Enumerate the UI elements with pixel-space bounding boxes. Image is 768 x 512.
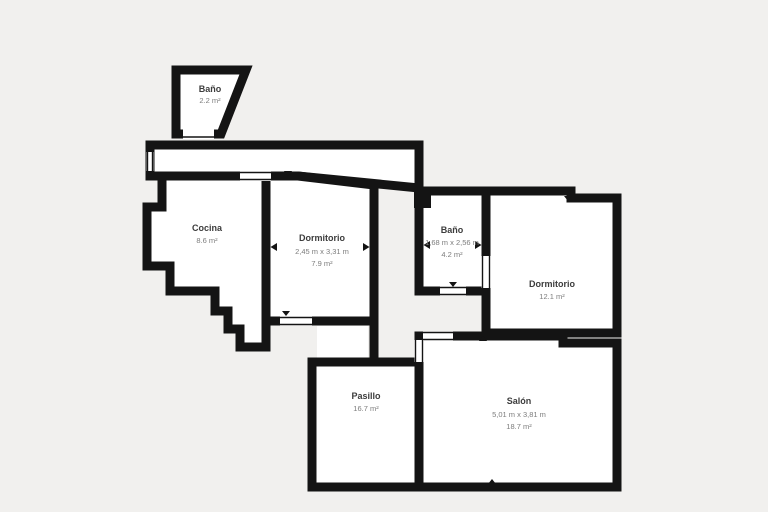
room-name: Dormitorio — [529, 279, 576, 289]
room-name: Dormitorio — [299, 233, 346, 243]
wall-bano-mid-notch — [414, 191, 431, 208]
room-dims: 1,68 m x 2,56 m — [425, 238, 479, 247]
room-area: 12.1 m² — [539, 292, 565, 301]
room-dims: 5,01 m x 3,81 m — [492, 410, 546, 419]
wall-dormleft-to-pasillo — [370, 316, 379, 366]
cavity-strip — [317, 326, 368, 358]
room-pasillo-outline — [312, 362, 419, 487]
floorplan-page: Baño 2.2 m² Cocina 8.6 m² Dormitorio 2,4… — [0, 0, 768, 512]
room-area: 7.9 m² — [311, 259, 333, 268]
room-name: Pasillo — [351, 391, 381, 401]
room-name: Cocina — [192, 223, 223, 233]
room-area: 2.2 m² — [199, 96, 221, 105]
room-area: 4.2 m² — [441, 250, 463, 259]
room-dormitorio-right-outline — [486, 191, 617, 333]
room-area: 8.6 m² — [196, 236, 218, 245]
floorplan-canvas: Baño 2.2 m² Cocina 8.6 m² Dormitorio 2,4… — [0, 0, 768, 512]
room-area: 16.7 m² — [353, 404, 379, 413]
room-name: Baño — [199, 84, 222, 94]
room-name: Baño — [441, 225, 464, 235]
room-area: 18.7 m² — [506, 422, 532, 431]
room-name: Salón — [507, 396, 532, 406]
room-dims: 2,45 m x 3,31 m — [295, 247, 349, 256]
